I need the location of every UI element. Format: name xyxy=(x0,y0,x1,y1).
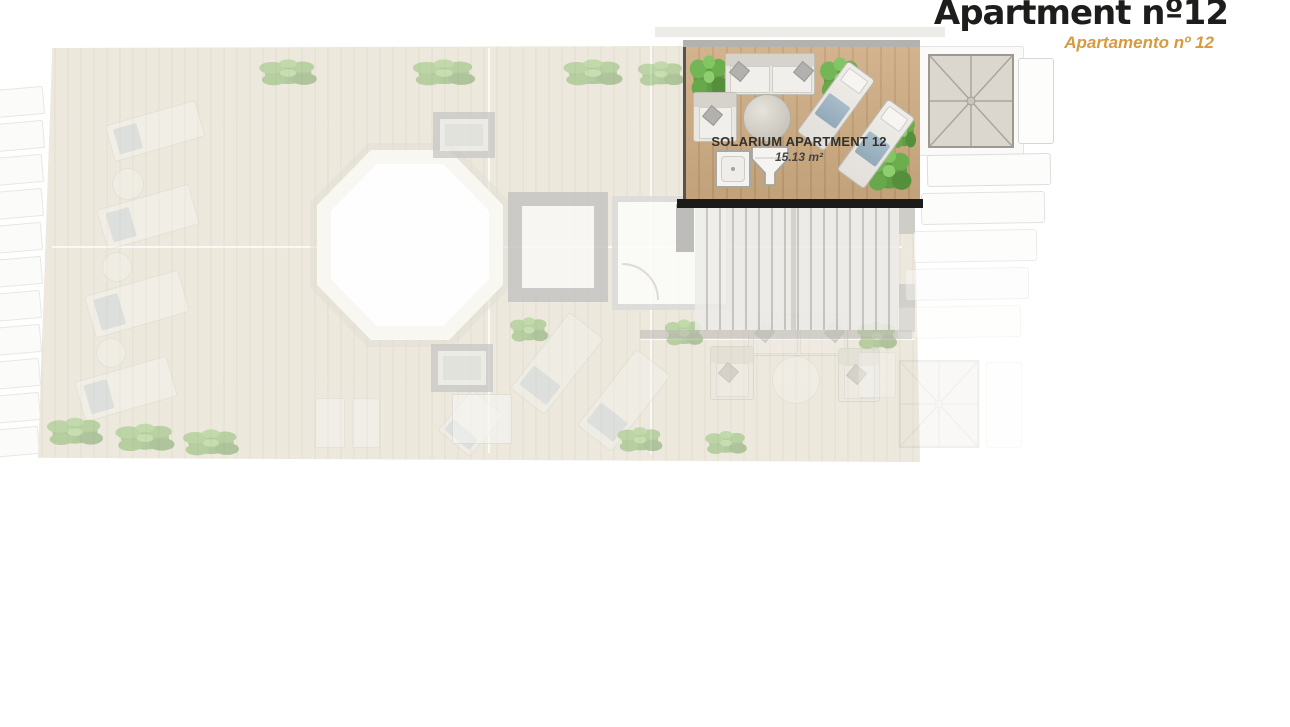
wall-segment xyxy=(676,204,694,252)
roof-unit xyxy=(352,398,380,448)
side-table-icon xyxy=(96,338,126,368)
sun-lounger-icon xyxy=(96,184,200,251)
roof-strip xyxy=(1018,58,1054,144)
solarium-top-wall xyxy=(683,40,920,47)
faded-deck-furniture xyxy=(0,0,1290,727)
plant-icon xyxy=(612,424,668,456)
solarium-apartment-12: SOLARIUM APARTMENT 12 15.13 m² xyxy=(683,40,920,203)
side-table-icon xyxy=(112,168,144,200)
side-table-icon xyxy=(102,252,132,282)
round-table-icon xyxy=(772,356,820,404)
solarium-label: SOLARIUM APARTMENT 12 15.13 m² xyxy=(689,134,909,164)
upper-wall-edge xyxy=(655,27,945,37)
hip-roof-icon xyxy=(898,360,980,448)
roof-band xyxy=(897,305,1022,339)
wall-segment xyxy=(899,204,915,234)
solarium-area: 15.13 m² xyxy=(689,150,909,164)
plant-icon xyxy=(505,314,553,346)
roof-strip xyxy=(986,362,1022,448)
floorplan-page: SOLARIUM APARTMENT 12 15.13 m² Apartment… xyxy=(0,0,1290,727)
sofa-icon xyxy=(725,53,815,95)
skylight-icon xyxy=(431,344,493,392)
plant-icon xyxy=(700,428,752,458)
wall-segment xyxy=(640,330,912,339)
plant-icon xyxy=(108,420,182,456)
plant-icon xyxy=(40,414,110,450)
solarium-boundary-wall xyxy=(677,199,923,208)
plant-icon xyxy=(556,56,630,90)
sun-lounger-icon xyxy=(74,356,178,423)
hip-roof-icon xyxy=(928,54,1014,148)
plant-icon xyxy=(405,56,483,90)
sun-lounger-icon xyxy=(105,100,206,162)
pool-water xyxy=(331,164,489,326)
roof-band xyxy=(905,267,1030,301)
plant-icon xyxy=(252,56,324,90)
roof-unit xyxy=(315,398,345,448)
solarium-name: SOLARIUM APARTMENT 12 xyxy=(689,134,909,149)
roof-band xyxy=(913,229,1038,263)
armchair-icon xyxy=(710,346,754,400)
roof-unit xyxy=(452,394,512,444)
page-title: Apartment nº12 xyxy=(934,0,1228,33)
elevator-shaft xyxy=(508,192,608,302)
roof-band xyxy=(921,191,1046,225)
roof-band xyxy=(927,153,1052,187)
plant-icon xyxy=(632,58,690,90)
skylight-icon xyxy=(433,112,495,158)
roof-unit xyxy=(858,352,896,398)
page-subtitle: Apartamento nº 12 xyxy=(1064,33,1214,53)
sun-lounger-icon xyxy=(84,269,190,338)
plant-icon xyxy=(176,426,246,460)
stairs-icon xyxy=(695,204,899,330)
